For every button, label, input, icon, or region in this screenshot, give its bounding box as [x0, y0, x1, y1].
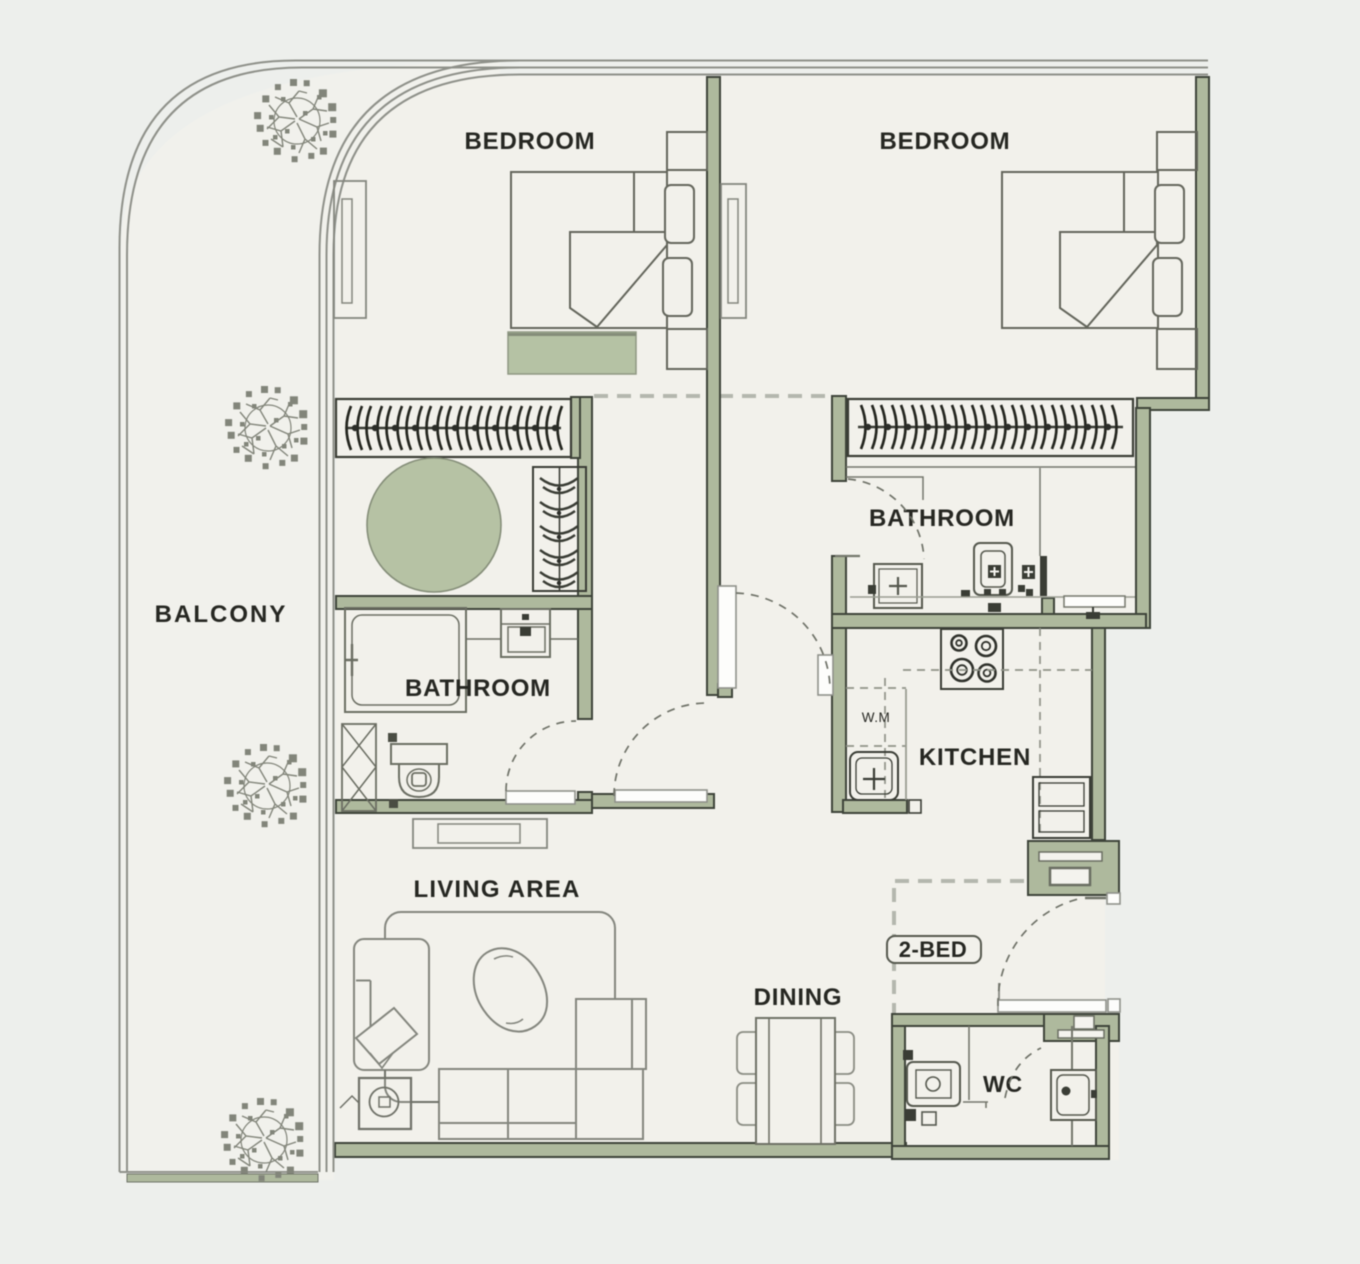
svg-text:BALCONY: BALCONY: [155, 601, 288, 628]
svg-text:LIVING AREA: LIVING AREA: [414, 876, 581, 903]
svg-text:BEDROOM: BEDROOM: [880, 128, 1011, 155]
svg-text:W.M: W.M: [862, 710, 891, 725]
svg-text:KITCHEN: KITCHEN: [919, 744, 1031, 771]
svg-text:DINING: DINING: [754, 984, 843, 1011]
svg-text:WC: WC: [983, 1071, 1023, 1097]
svg-text:BATHROOM: BATHROOM: [405, 675, 551, 702]
svg-text:BEDROOM: BEDROOM: [465, 128, 596, 155]
svg-text:2-BED: 2-BED: [899, 937, 968, 962]
svg-text:BATHROOM: BATHROOM: [869, 505, 1015, 532]
